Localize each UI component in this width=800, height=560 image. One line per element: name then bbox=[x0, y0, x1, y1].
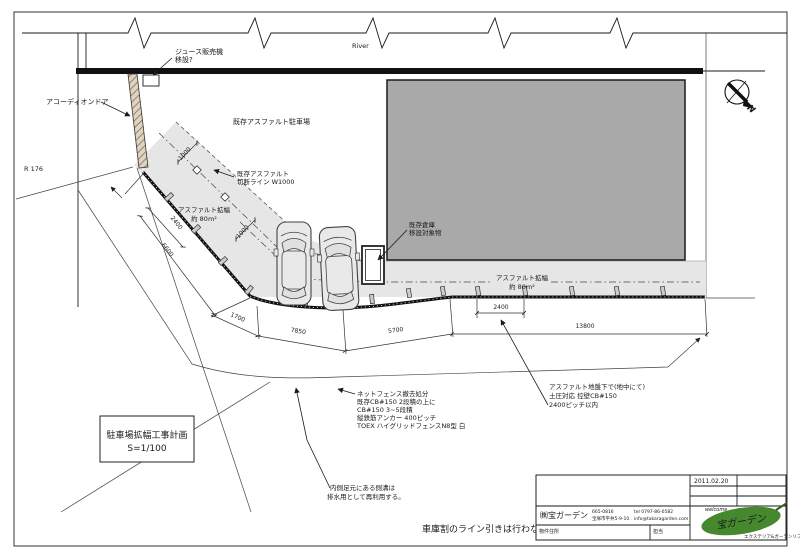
company-name: ㈱宝ガーデン bbox=[540, 510, 588, 520]
warehouse-label-1: 既存倉庫 bbox=[409, 220, 436, 229]
company-email: info@takaragarden.com bbox=[634, 516, 688, 522]
title-box: 駐車場拡幅工事計画 S=1/100 bbox=[100, 416, 194, 462]
fence-note-2: 既存CB#150 2段積の上に bbox=[357, 397, 436, 406]
existing-parking-label: 既存アスファルト駐車場 bbox=[233, 117, 310, 126]
gutter-note-2: 排水用として再利用する。 bbox=[327, 492, 405, 501]
fence-note-5: TOEX ハイグリッドフェンスN8型 白 bbox=[356, 421, 465, 430]
accordion-door-leader bbox=[101, 102, 130, 116]
company-tel: tel 0797-86-0582 bbox=[634, 509, 673, 515]
fence-note-4: 縦鉄筋アンカー 400ピッチ bbox=[357, 413, 436, 422]
warehouse-label-2: 移設対象物 bbox=[409, 228, 442, 237]
gutter-note-leader bbox=[296, 388, 330, 488]
title-box-line-1: 駐車場拡幅工事計画 bbox=[106, 429, 187, 441]
road-label: R 176 bbox=[24, 165, 43, 173]
title-block-date: 2011.02.20 bbox=[694, 478, 729, 485]
vending-machine bbox=[143, 75, 159, 86]
accordion-door-wall bbox=[128, 74, 148, 168]
gutter-note-1: 内側足元にある側溝は bbox=[330, 483, 396, 492]
dim-1700: 1700 bbox=[229, 311, 246, 323]
fence-note-3: CB#150 3~5段積 bbox=[357, 405, 413, 414]
underground-note-leader bbox=[501, 320, 548, 405]
bottom-dimensions: 1700 7850 5700 13800 2400 bbox=[214, 299, 707, 354]
logo-tagline-top: welcome bbox=[705, 507, 727, 513]
north-compass: N bbox=[725, 80, 757, 116]
company-postal: 665-0816 bbox=[592, 509, 614, 515]
underground-note-2: 土圧対応 控壁CB#150 bbox=[549, 391, 617, 400]
dim-5700: 5700 bbox=[388, 326, 404, 335]
warehouse bbox=[362, 246, 384, 284]
cut-line-label-2: 切断ライン W1000 bbox=[237, 177, 295, 186]
cut-line-label-1: 既存アスファルト bbox=[237, 169, 289, 178]
fence-note-leader bbox=[338, 389, 355, 394]
dim-6600: 6600 bbox=[160, 242, 175, 258]
widening-right-label-2: 約 80m² bbox=[509, 282, 535, 291]
widening-right-label-1: アスファルト拡幅 bbox=[496, 273, 549, 282]
drawing-page: River R 176 N bbox=[0, 0, 800, 560]
underground-note-1: アスファルト地盤下で(地中にて) bbox=[549, 382, 645, 391]
logo-tagline-bottom: エクステリア&ガーデンリフォーム bbox=[744, 533, 800, 540]
car-1 bbox=[274, 222, 314, 305]
widening-left-label-1: アスファルト拡幅 bbox=[178, 205, 231, 214]
vending-label-2: 移設? bbox=[175, 55, 193, 64]
no-lines-note: 車庫割のライン引きは行わない bbox=[422, 523, 548, 535]
dim-13800: 13800 bbox=[575, 323, 594, 330]
title-box-line-2: S=1/100 bbox=[127, 444, 166, 454]
widening-left-label-2: 約 80m² bbox=[191, 214, 217, 223]
staff-label: 担当 bbox=[653, 528, 663, 535]
fence-note-1: ネットフェンス撤去処分 bbox=[357, 389, 429, 398]
accordion-door-label: アコーディオンドア bbox=[46, 97, 109, 106]
dim-2400-pitch: 2400 bbox=[493, 304, 508, 311]
property-address-label: 物件住所 bbox=[539, 528, 559, 535]
river-break-line bbox=[22, 18, 787, 48]
dim-7850: 7850 bbox=[290, 327, 306, 336]
underground-note-3: 2400ピッチ以内 bbox=[549, 400, 598, 409]
plan-drawing: River R 176 N bbox=[0, 0, 800, 560]
car-2 bbox=[316, 226, 362, 311]
vending-label-1: ジュース販売機 bbox=[175, 47, 223, 56]
river-label: River bbox=[352, 42, 369, 50]
company-address: 宝塚市平井5-9-10 bbox=[592, 515, 629, 522]
